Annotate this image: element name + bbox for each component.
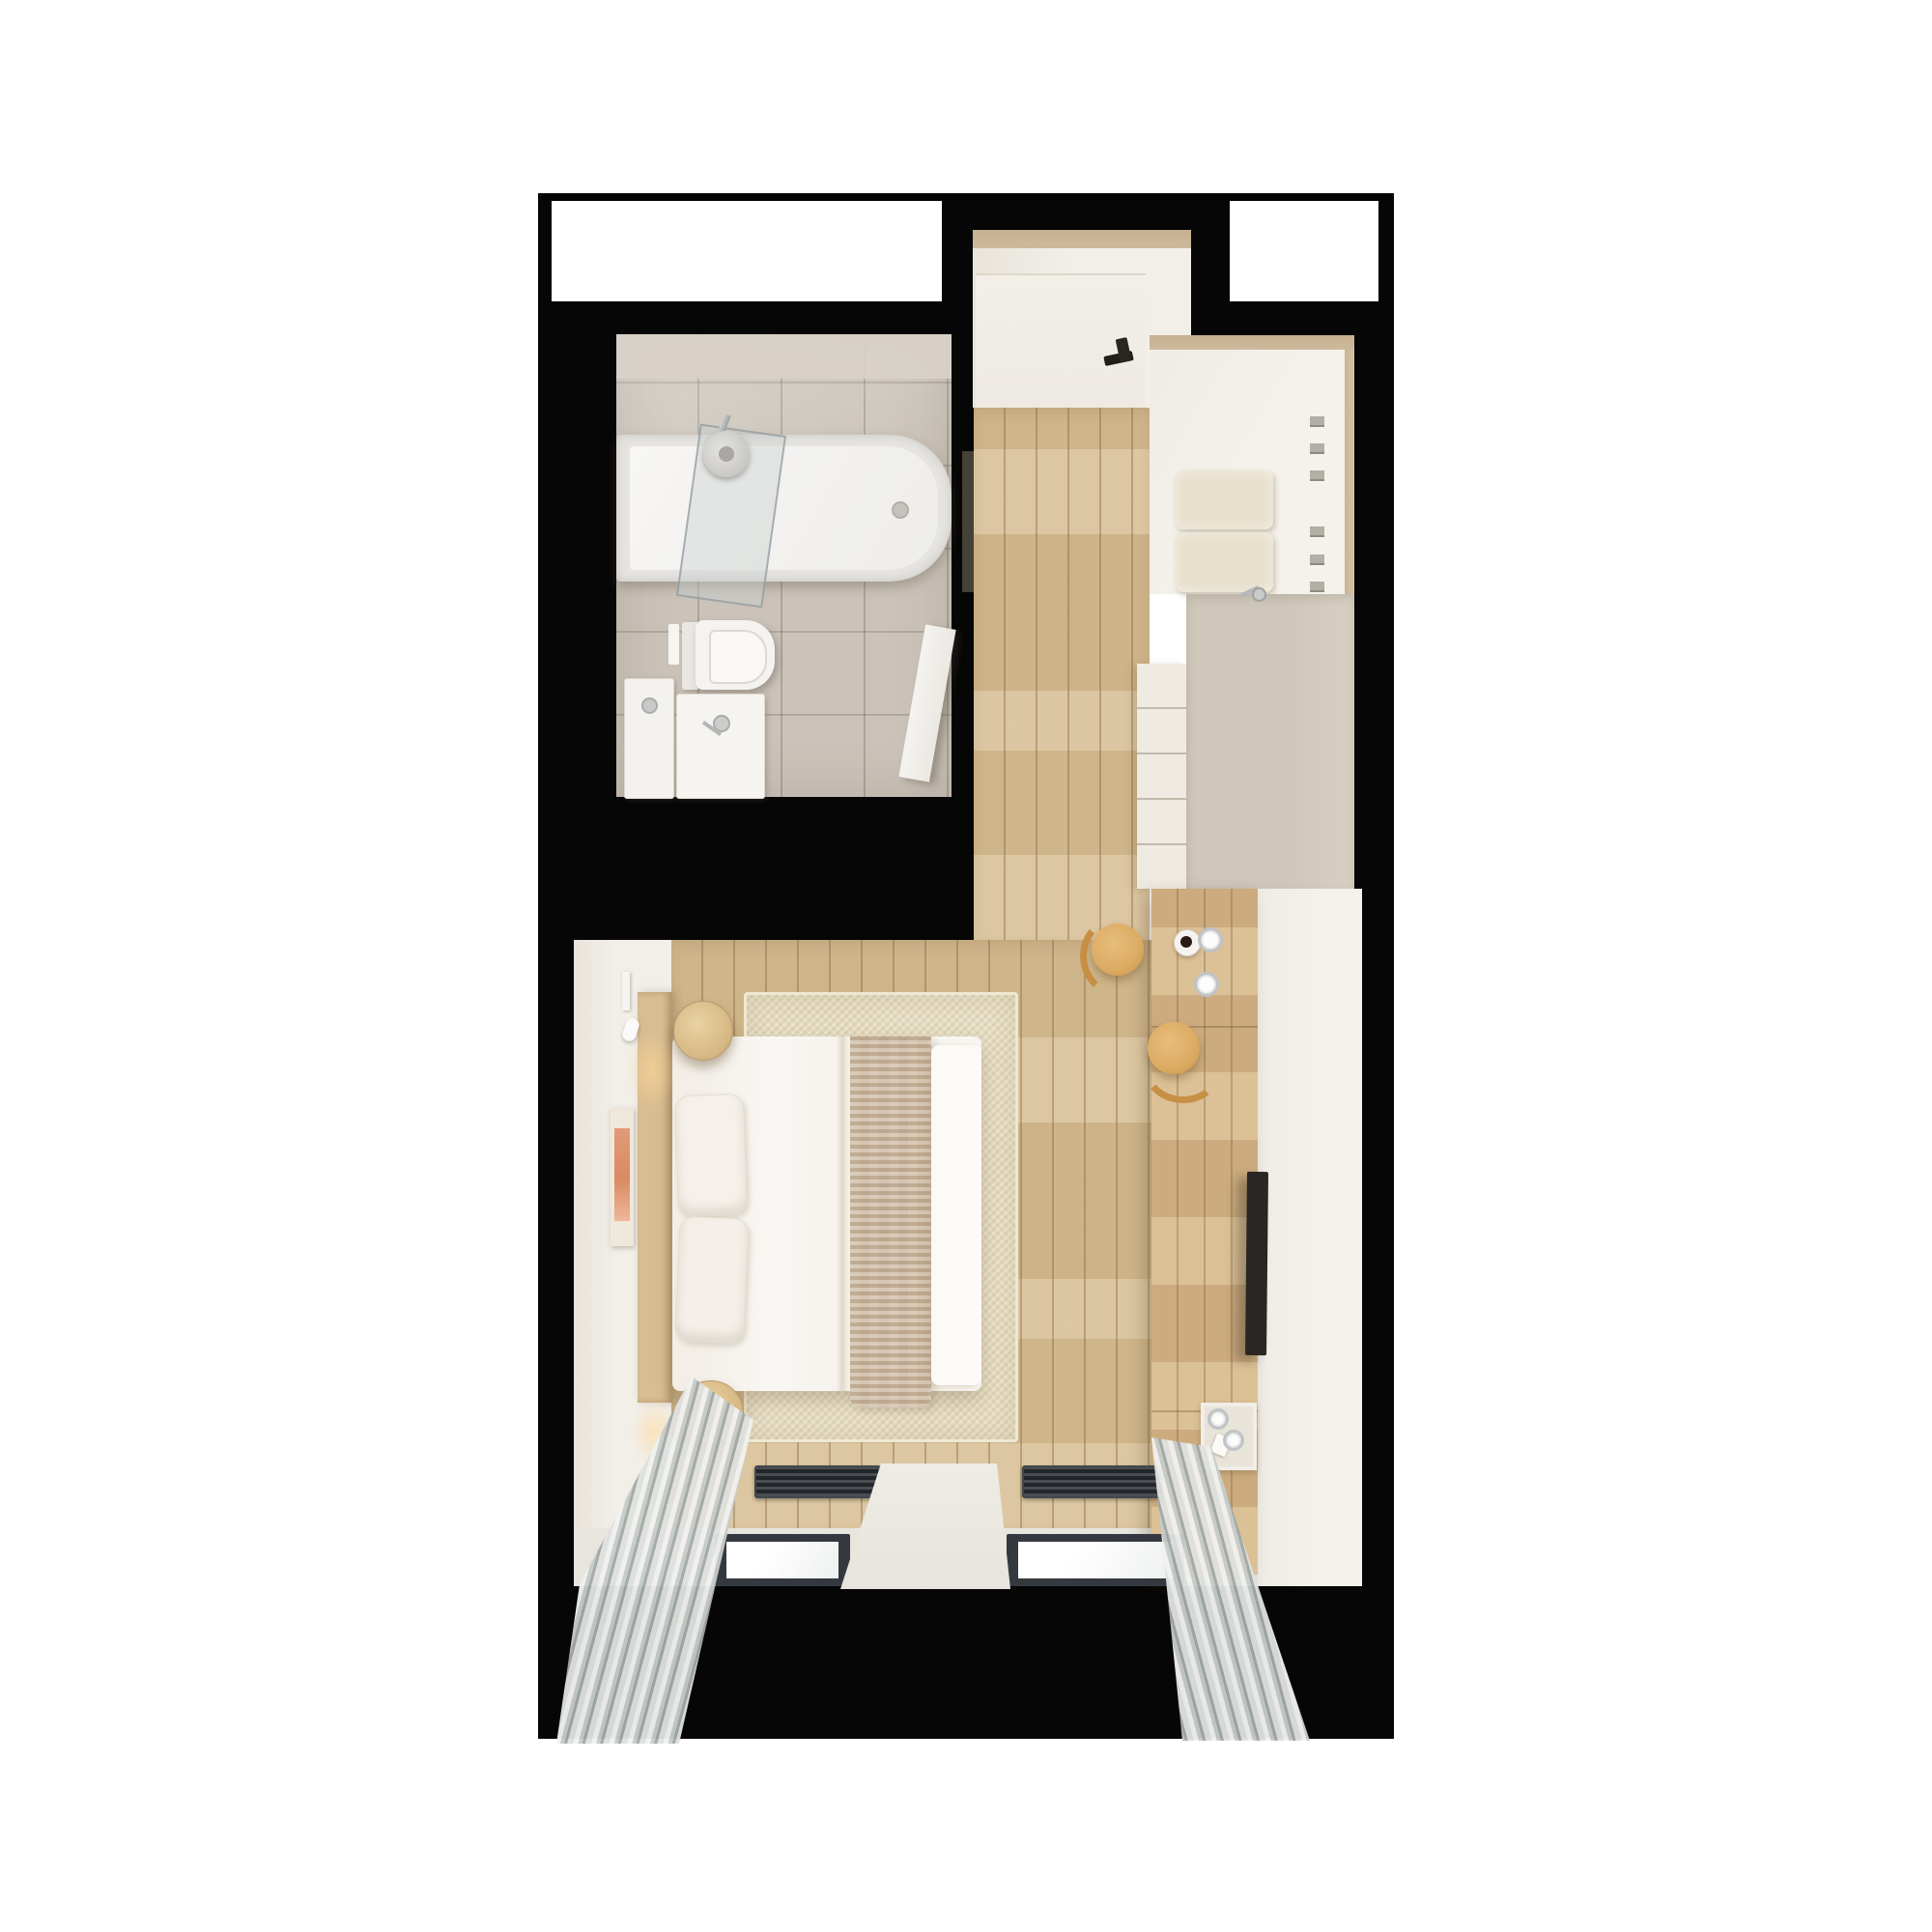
floor-vent-2 <box>1022 1465 1163 1498</box>
wardrobe-handle-5 <box>1310 554 1324 565</box>
storage-box-1 <box>1176 470 1273 529</box>
wall-switch <box>622 972 630 1010</box>
chair-1-seat <box>1092 923 1144 976</box>
wardrobe-handle-1 <box>1310 416 1324 427</box>
tray-glass-1 <box>1207 1408 1229 1430</box>
headboard-light-glow-1 <box>626 1032 678 1109</box>
desk-glass-1 <box>1198 927 1223 952</box>
wardrobe-handle-2 <box>1310 443 1324 454</box>
desk-glass-2 <box>1194 972 1219 997</box>
corridor-dark-panel <box>962 451 974 592</box>
tray-glass-2 <box>1223 1430 1244 1451</box>
bathroom-basin-left <box>624 678 674 799</box>
nightstand-1 <box>673 1001 733 1061</box>
bathroom-basin-right <box>676 694 765 799</box>
shower-head-center <box>719 446 734 462</box>
wardrobe-handle-3 <box>1310 470 1324 481</box>
wall-bathroom-top <box>538 301 973 334</box>
wall-corridor-west <box>952 334 974 940</box>
wall-opening-top-right <box>1230 201 1378 301</box>
window-2-glass <box>1018 1542 1173 1578</box>
toilet-flush-plate <box>668 624 679 665</box>
east-floor-strip <box>1258 889 1362 1586</box>
basin-left-faucet <box>641 697 658 714</box>
wall-mid-block <box>538 797 974 940</box>
wall-left-lower <box>538 940 574 1586</box>
chair-2-seat <box>1148 1022 1200 1074</box>
wall-opening-top-left <box>552 201 942 301</box>
knitted-throw <box>850 1037 931 1407</box>
wardrobe-handle-6 <box>1310 582 1324 592</box>
tv <box>1245 1172 1268 1355</box>
toilet-seat <box>709 630 767 684</box>
bathroom-wall-face <box>616 334 952 379</box>
duvet-crease <box>837 1037 848 1391</box>
storage-box-2 <box>1176 532 1273 592</box>
wall-nook-north <box>1230 301 1354 335</box>
pillow-1 <box>674 1094 748 1217</box>
kitchen-counter <box>1186 594 1354 889</box>
kitchen-faucet <box>1252 587 1266 602</box>
wall-artwork-print <box>614 1128 630 1221</box>
nook-wall-face <box>1150 335 1354 350</box>
entry-wall-face <box>973 230 1191 248</box>
floor-plan-canvas <box>0 0 1932 1932</box>
kitchen-cabinet-fronts <box>1137 664 1186 889</box>
wall-left-upper <box>538 334 616 797</box>
window-1-glass <box>726 1542 838 1578</box>
coffee-cup <box>1180 936 1192 948</box>
bathtub-drain <box>892 501 909 519</box>
wardrobe-handle-4 <box>1310 526 1324 537</box>
corridor-floor <box>974 408 1150 940</box>
wall-pillar-entry <box>1191 193 1230 335</box>
duvet-foot-fold <box>931 1045 981 1385</box>
floor-vent-1 <box>754 1465 881 1498</box>
pillow-2 <box>674 1215 750 1344</box>
